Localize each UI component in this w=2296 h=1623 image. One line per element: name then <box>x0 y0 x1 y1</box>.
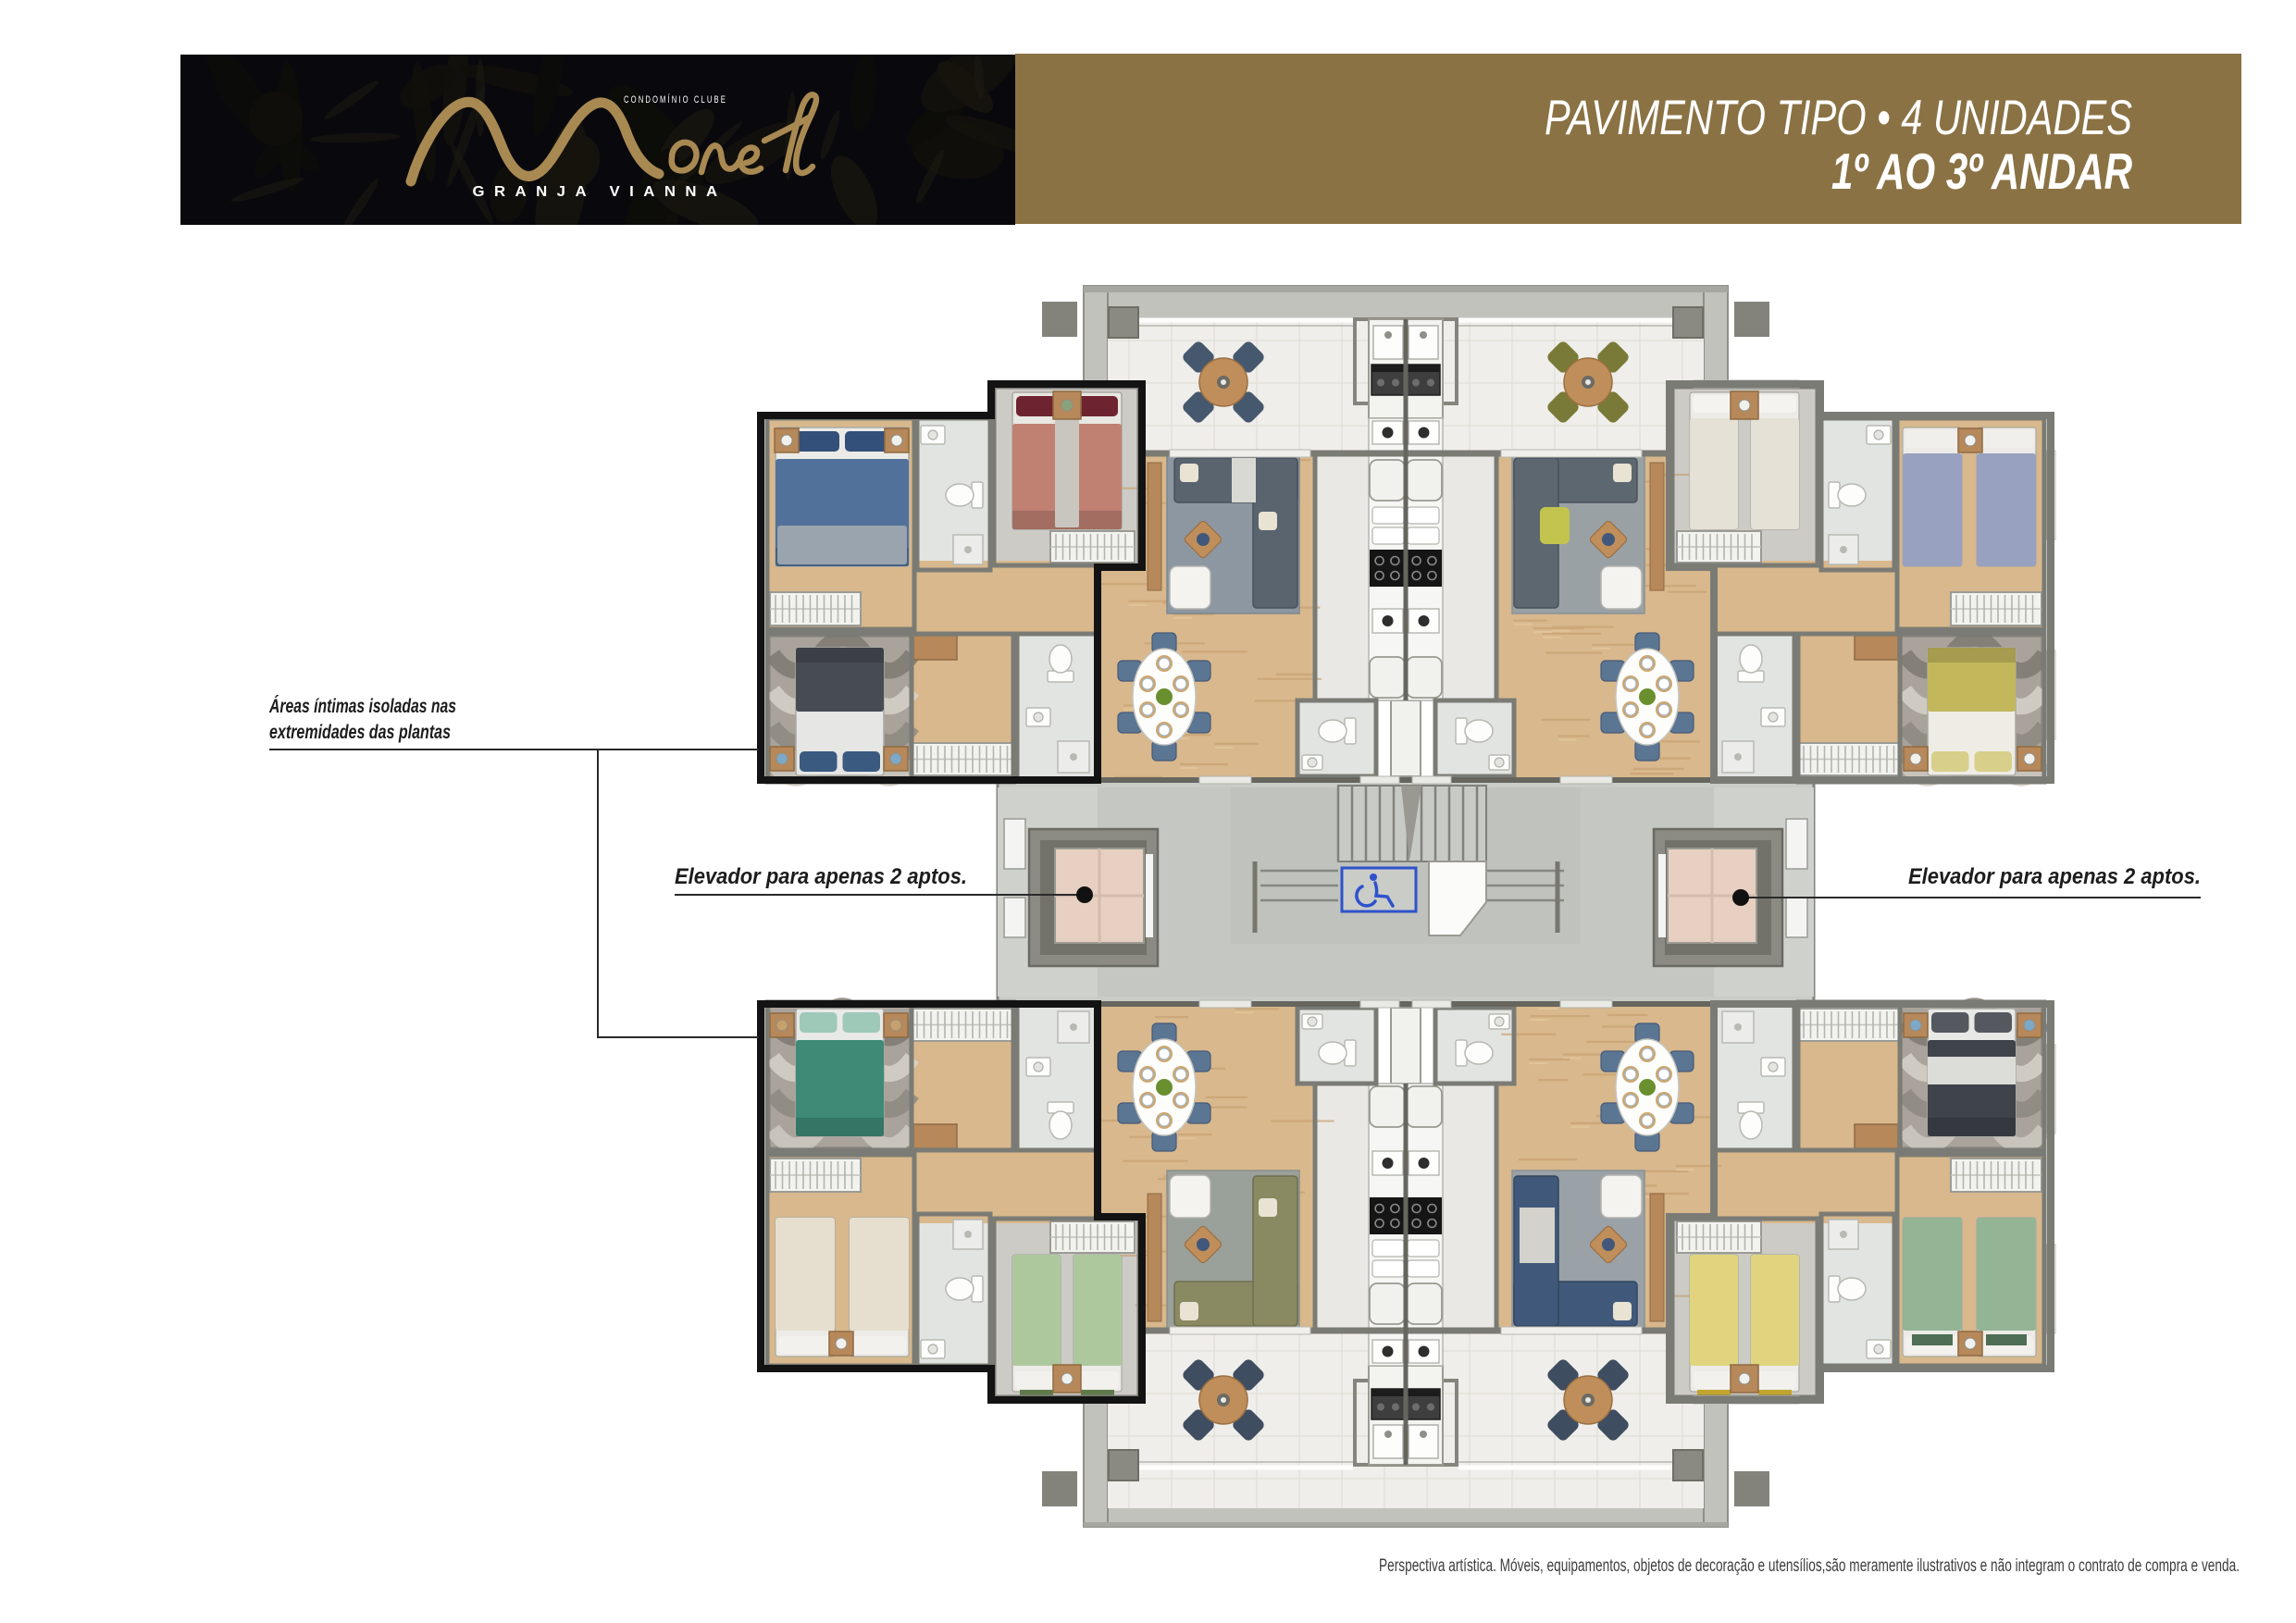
svg-text:Elevador para apenas 2 aptos.: Elevador para apenas 2 aptos. <box>675 864 967 889</box>
svg-text:CONDOMÍNIO CLUBE: CONDOMÍNIO CLUBE <box>624 93 727 105</box>
svg-text:Perspectiva artística. Móveis,: Perspectiva artística. Móveis, equipamen… <box>1379 1556 2240 1576</box>
svg-text:1º AO 3º ANDAR: 1º AO 3º ANDAR <box>1831 142 2132 200</box>
svg-text:Elevador para apenas 2 aptos.: Elevador para apenas 2 aptos. <box>1908 864 2201 889</box>
svg-text:PAVIMENTO TIPO • 4 UNIDADES: PAVIMENTO TIPO • 4 UNIDADES <box>1545 91 2132 145</box>
svg-text:GRANJA VIANNA: GRANJA VIANNA <box>473 184 727 200</box>
